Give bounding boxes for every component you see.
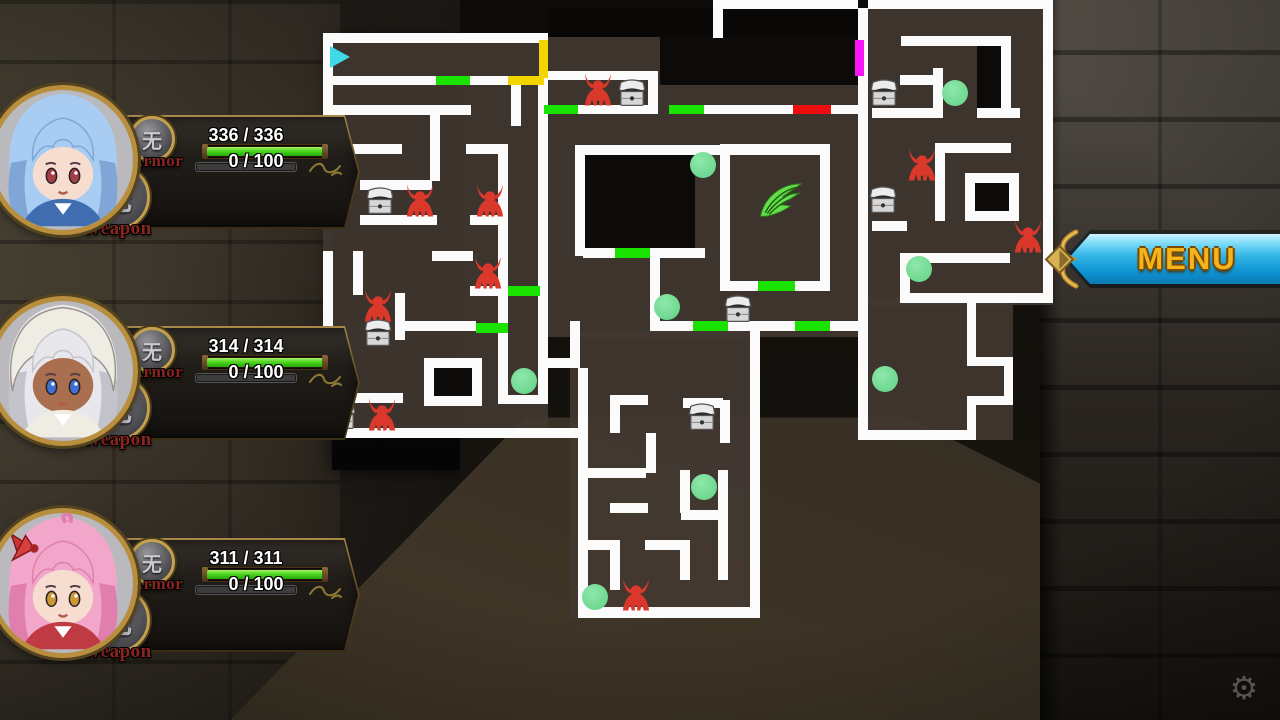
map-chest-icon bbox=[868, 77, 900, 107]
map-wall bbox=[872, 221, 907, 231]
map-wall bbox=[720, 400, 730, 443]
map-wall bbox=[498, 395, 548, 404]
map-door-green bbox=[476, 323, 508, 333]
map-door-green bbox=[508, 286, 540, 296]
map-door-green bbox=[544, 105, 578, 114]
map-enemy-icon bbox=[471, 183, 509, 219]
map-item-dot bbox=[511, 368, 537, 394]
map-unexplored-area bbox=[434, 368, 472, 396]
map-wall bbox=[645, 540, 683, 550]
menu-button[interactable]: MENU bbox=[1042, 226, 1280, 292]
game-screen: 336 / 336 0 / 100 无 Armor 无 Weapon 314 /… bbox=[0, 0, 1280, 720]
party-member-card[interactable]: 311 / 311 0 / 100 无 Armor 无 Weapon bbox=[0, 508, 366, 658]
map-chest-icon bbox=[867, 184, 899, 214]
tp-value: 0 / 100 bbox=[196, 151, 316, 172]
map-door-green bbox=[615, 248, 650, 258]
map-item-dot bbox=[691, 474, 717, 500]
map-wall bbox=[396, 321, 476, 331]
map-wall bbox=[681, 510, 723, 520]
map-door-yellow bbox=[539, 40, 548, 78]
map-wall bbox=[933, 68, 943, 108]
hp-value: 314 / 314 bbox=[186, 336, 306, 357]
map-wall bbox=[648, 71, 658, 114]
map-wall bbox=[704, 105, 793, 114]
map-wall bbox=[720, 144, 730, 291]
player-position-arrow bbox=[330, 46, 350, 68]
map-wall bbox=[967, 300, 976, 360]
map-wall bbox=[578, 368, 588, 618]
map-wall bbox=[965, 173, 975, 221]
map-door-green bbox=[436, 76, 470, 85]
map-wall bbox=[511, 78, 521, 126]
map-door-red bbox=[793, 105, 831, 114]
map-wall bbox=[1009, 173, 1019, 221]
hp-value: 336 / 336 bbox=[186, 125, 306, 146]
map-wall bbox=[430, 115, 440, 181]
map-wall bbox=[323, 76, 436, 85]
map-wall bbox=[432, 251, 473, 261]
map-wall bbox=[578, 540, 620, 550]
map-wall bbox=[610, 503, 648, 513]
map-wall bbox=[538, 78, 548, 404]
armor-glyph: 无 bbox=[142, 125, 162, 154]
map-wall bbox=[858, 430, 975, 440]
map-enemy-icon bbox=[401, 183, 439, 219]
tp-value: 0 / 100 bbox=[196, 574, 316, 595]
map-wall bbox=[868, 0, 1046, 9]
map-wall bbox=[795, 281, 830, 291]
party-member-card[interactable]: 314 / 314 0 / 100 无 Armor 无 Weapon bbox=[0, 296, 366, 446]
map-wall bbox=[578, 468, 646, 478]
map-chest-icon bbox=[686, 401, 718, 431]
map-wall bbox=[610, 395, 620, 433]
map-wall bbox=[713, 0, 858, 9]
map-enemy-icon bbox=[469, 255, 507, 291]
map-wall bbox=[935, 143, 1011, 153]
map-wall bbox=[650, 248, 660, 331]
map-wall bbox=[578, 607, 760, 618]
hp-bar-cap bbox=[322, 355, 328, 370]
map-item-dot bbox=[872, 366, 898, 392]
armor-glyph: 无 bbox=[142, 336, 162, 365]
map-wall bbox=[583, 248, 615, 258]
map-enemy-icon bbox=[617, 577, 655, 613]
map-wall bbox=[750, 331, 760, 618]
map-wall bbox=[720, 281, 758, 291]
tp-value: 0 / 100 bbox=[196, 362, 316, 383]
map-wing-icon bbox=[756, 181, 806, 221]
map-item-dot bbox=[582, 584, 608, 610]
map-wall bbox=[424, 396, 482, 406]
map-wall bbox=[872, 108, 943, 118]
map-chest-icon bbox=[364, 185, 396, 215]
map-wall bbox=[830, 321, 858, 331]
map-wall bbox=[713, 0, 723, 38]
map-wall bbox=[831, 105, 858, 114]
filigree-ornament-icon bbox=[308, 582, 342, 602]
map-wall bbox=[646, 433, 656, 473]
map-wall bbox=[967, 402, 976, 440]
map-wall bbox=[470, 76, 508, 85]
map-unexplored-area bbox=[548, 8, 660, 37]
character-portrait[interactable] bbox=[0, 508, 138, 658]
hp-value: 311 / 311 bbox=[186, 548, 306, 569]
settings-gear-icon[interactable]: ⚙ bbox=[1224, 668, 1264, 708]
map-wall bbox=[718, 470, 728, 580]
filigree-ornament-icon bbox=[308, 370, 342, 390]
map-door-green bbox=[669, 105, 704, 114]
map-item-dot bbox=[654, 294, 680, 320]
map-wall bbox=[680, 540, 690, 580]
map-wall bbox=[575, 145, 585, 256]
map-wall bbox=[820, 144, 830, 291]
menu-ornament-icon bbox=[1042, 226, 1088, 292]
armor-glyph: 无 bbox=[142, 548, 162, 577]
map-wall bbox=[977, 108, 1020, 118]
map-wall bbox=[680, 470, 690, 513]
map-item-dot bbox=[690, 152, 716, 178]
filigree-ornament-icon bbox=[308, 159, 342, 179]
map-unexplored-area bbox=[975, 183, 1009, 211]
map-door-green bbox=[795, 321, 830, 331]
map-wall bbox=[656, 321, 693, 331]
map-chest-icon bbox=[616, 77, 648, 107]
map-unexplored-area bbox=[583, 155, 695, 248]
party-member-card[interactable]: 336 / 336 0 / 100 无 Armor 无 Weapon bbox=[0, 85, 366, 235]
hp-bar-cap bbox=[322, 567, 328, 582]
menu-label: MENU bbox=[1111, 241, 1236, 277]
map-chest-icon bbox=[362, 317, 394, 347]
map-chest-icon bbox=[722, 293, 754, 323]
map-wall bbox=[900, 75, 937, 85]
character-portrait[interactable] bbox=[0, 296, 138, 446]
map-wall bbox=[1001, 36, 1011, 118]
map-wall bbox=[901, 36, 1011, 46]
map-wall bbox=[540, 358, 580, 368]
map-unexplored-area bbox=[660, 8, 858, 85]
map-wall bbox=[720, 144, 830, 154]
map-enemy-icon bbox=[903, 147, 941, 183]
character-portrait[interactable] bbox=[0, 85, 138, 235]
hp-bar-cap bbox=[322, 144, 328, 159]
map-item-dot bbox=[942, 80, 968, 106]
map-wall bbox=[323, 33, 548, 43]
map-enemy-icon bbox=[579, 72, 617, 108]
map-enemy-icon bbox=[363, 397, 401, 433]
menu-banner: MENU bbox=[1068, 234, 1280, 284]
map-item-dot bbox=[906, 256, 932, 282]
map-door-green bbox=[758, 281, 795, 291]
map-door-magenta bbox=[855, 40, 864, 76]
